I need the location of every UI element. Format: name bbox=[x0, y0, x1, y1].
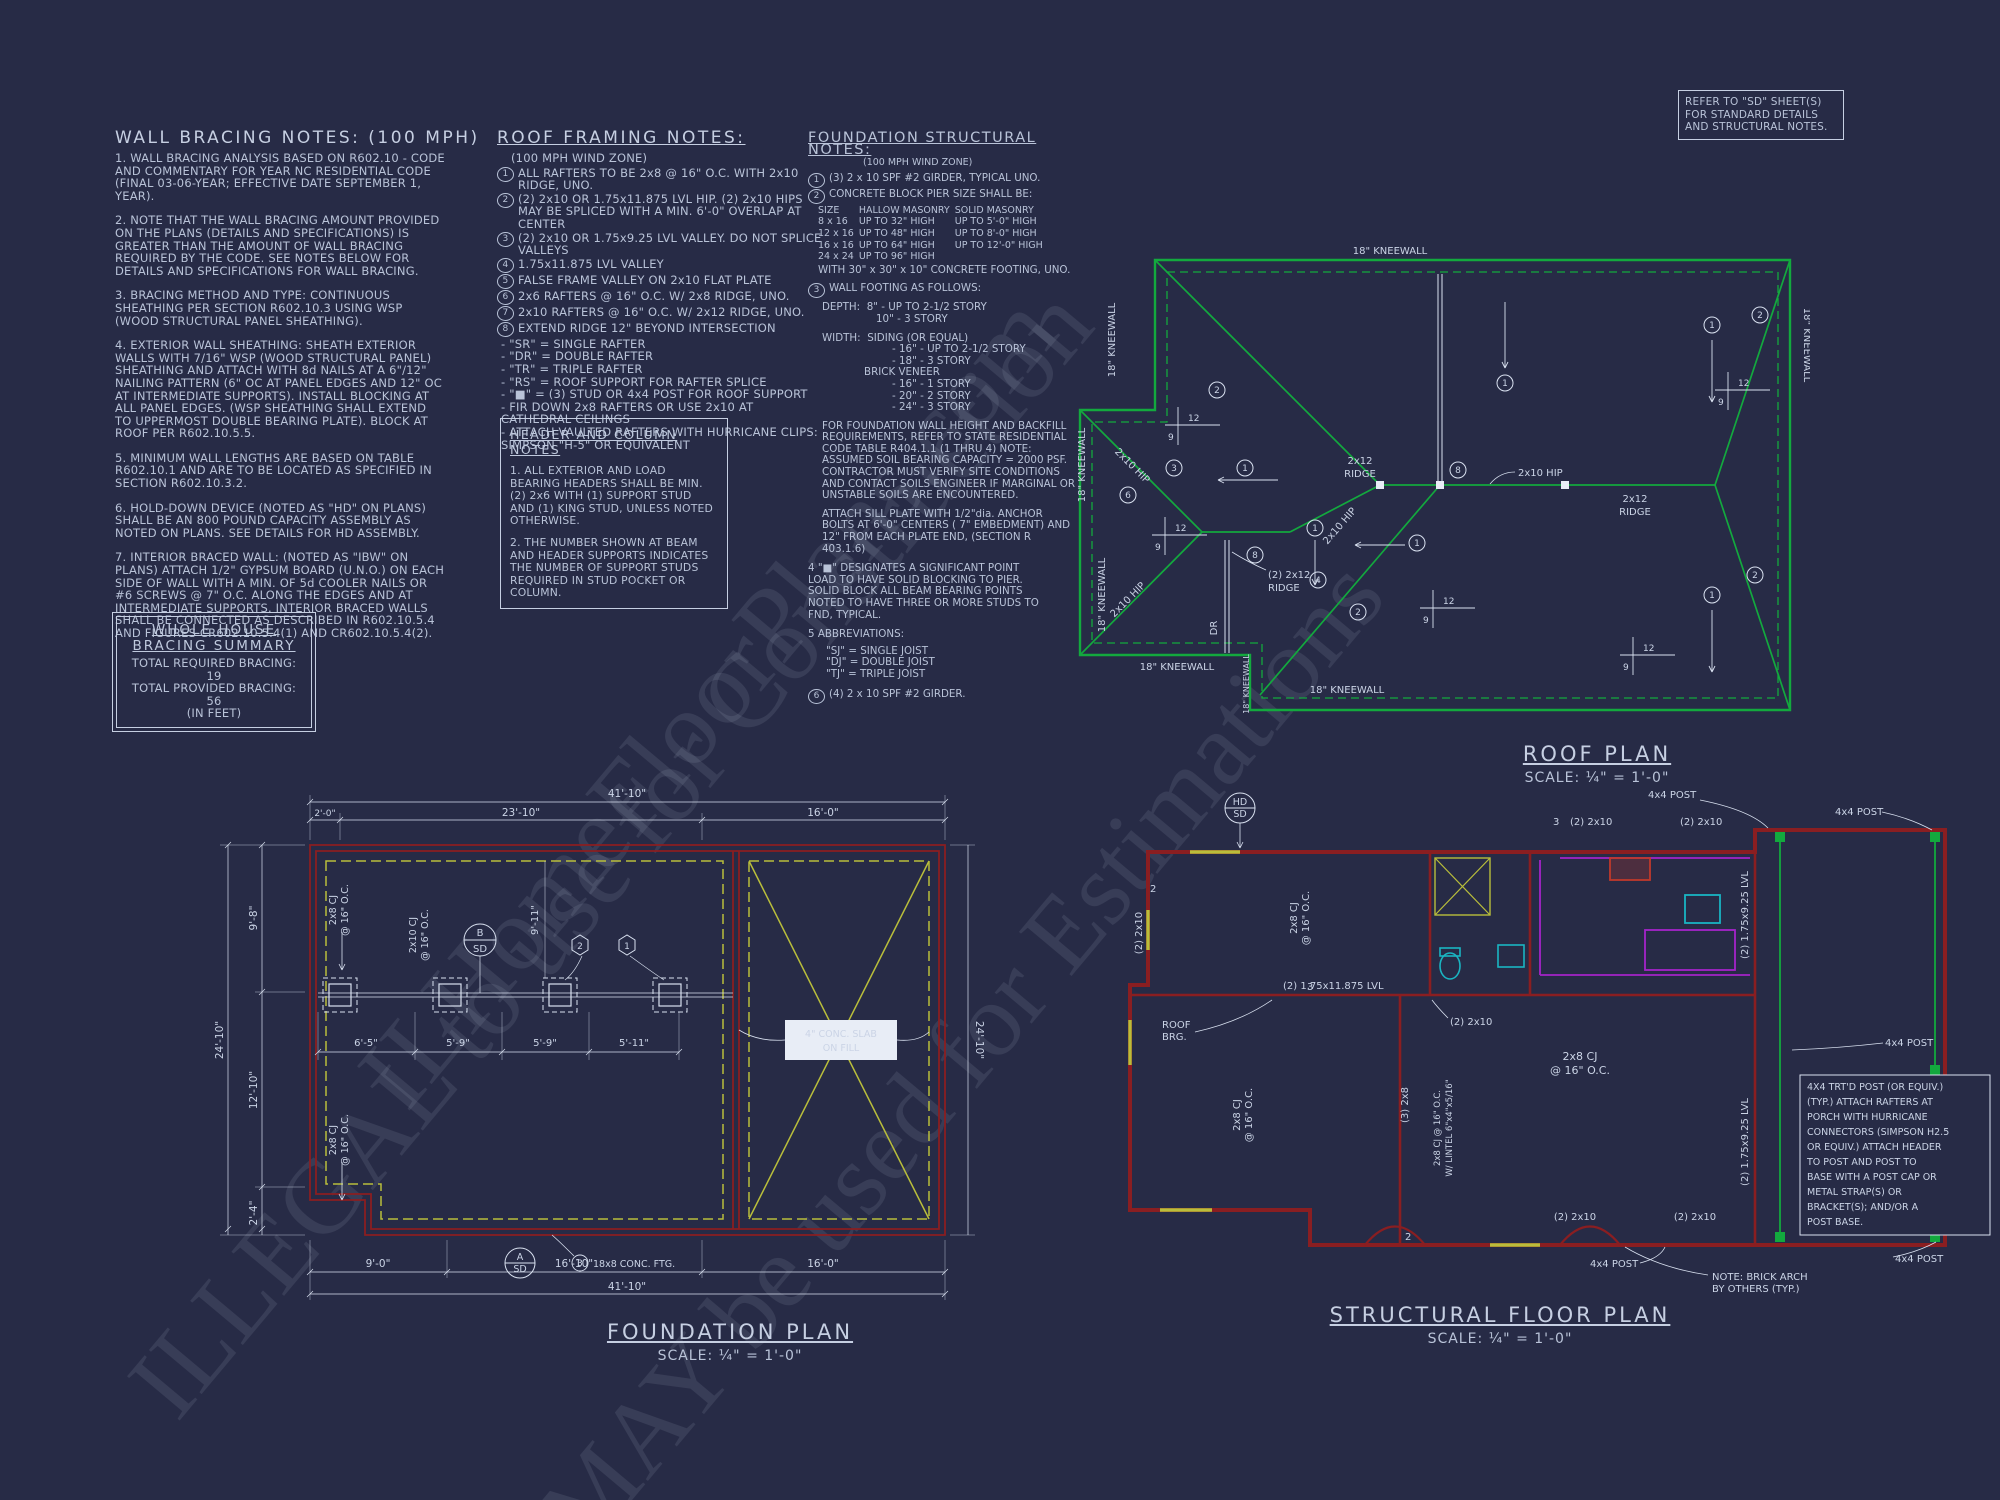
roof-framing-title: ROOF FRAMING NOTES: bbox=[497, 128, 827, 148]
svg-text:2x8 CJ: 2x8 CJ bbox=[1232, 1099, 1243, 1131]
wall-bracing-note: 2. NOTE THAT THE WALL BRACING AMOUNT PRO… bbox=[115, 214, 445, 277]
svg-text:12'-10": 12'-10" bbox=[248, 1071, 260, 1109]
svg-text:ON FILL: ON FILL bbox=[823, 1043, 860, 1054]
roof-note-text: EXTEND RIDGE 12" BEYOND INTERSECTION bbox=[518, 322, 827, 337]
svg-text:POST BASE.: POST BASE. bbox=[1807, 1217, 1863, 1228]
roof-outline bbox=[1080, 260, 1790, 710]
wall-bracing-note: 3. BRACING METHOD AND TYPE: CONTINUOUS S… bbox=[115, 289, 445, 327]
svg-text:(TYP.) ATTACH RAFTERS AT: (TYP.) ATTACH RAFTERS AT bbox=[1807, 1097, 1933, 1108]
roof-note-text: 2x10 RAFTERS @ 16" O.C. W/ 2x12 RIDGE, U… bbox=[518, 306, 827, 321]
svg-text:(2) 2x12: (2) 2x12 bbox=[1268, 570, 1310, 581]
svg-text:2x12: 2x12 bbox=[1347, 456, 1372, 467]
foundation-note-3: 3WALL FOOTING AS FOLLOWS: bbox=[808, 283, 1088, 298]
foundation-plan-title-block: FOUNDATION PLAN SCALE: ¼" = 1'-0" bbox=[590, 1320, 870, 1364]
roof-note-item: 41.75x11.875 LVL VALLEY bbox=[497, 258, 827, 273]
girder-detail-bubble-B: B SD bbox=[464, 924, 496, 993]
sd-ref-line3: AND STRUCTURAL NOTES. bbox=[1685, 121, 1837, 134]
svg-text:3: 3 bbox=[1307, 982, 1313, 993]
svg-text:18" KNEEWALL: 18" KNEEWALL bbox=[1353, 246, 1428, 257]
svg-text:2x12: 2x12 bbox=[1622, 494, 1647, 505]
roof-plan-title: ROOF PLAN bbox=[1477, 742, 1717, 766]
roof-note-text: (2) 2x10 OR 1.75x9.25 LVL VALLEY. DO NOT… bbox=[518, 232, 827, 257]
sd-ref-line1: REFER TO "SD" SHEET(S) bbox=[1685, 96, 1837, 109]
roof-note-number: 2 bbox=[497, 193, 514, 208]
roof-note-number: 3 bbox=[497, 232, 514, 247]
kitchen-cabinets bbox=[1540, 858, 1750, 975]
svg-text:(3) 2x8: (3) 2x8 bbox=[1400, 1087, 1411, 1123]
foundation-note-4: 4 "■" DESIGNATES A SIGNIFICANT POINT LOA… bbox=[808, 563, 1043, 621]
svg-text:(2) 2x10: (2) 2x10 bbox=[1680, 817, 1722, 828]
svg-text:(2) 1.75x9.25 LVL: (2) 1.75x9.25 LVL bbox=[1740, 871, 1751, 959]
header-column-title: HEADER AND COLUMN NOTES bbox=[510, 427, 718, 457]
svg-text:1: 1 bbox=[1242, 464, 1248, 474]
foundation-plan-title: FOUNDATION PLAN bbox=[590, 1320, 870, 1344]
svg-text:2: 2 bbox=[1757, 311, 1763, 321]
svg-text:2: 2 bbox=[1150, 884, 1156, 895]
svg-text:RIDGE: RIDGE bbox=[1268, 583, 1300, 594]
svg-text:2: 2 bbox=[1752, 571, 1758, 581]
svg-text:SD: SD bbox=[473, 944, 487, 955]
svg-text:9: 9 bbox=[1718, 398, 1724, 408]
header-column-notes-box: HEADER AND COLUMN NOTES 1. ALL EXTERIOR … bbox=[500, 418, 728, 609]
svg-text:5'-9": 5'-9" bbox=[533, 1038, 557, 1049]
svg-text:2: 2 bbox=[1405, 1232, 1411, 1243]
svg-text:SD: SD bbox=[1233, 809, 1246, 820]
roof-note-item: 1ALL RAFTERS TO BE 2x8 @ 16" O.C. WITH 2… bbox=[497, 167, 827, 192]
svg-text:4: 4 bbox=[1315, 576, 1321, 586]
svg-text:41'-10": 41'-10" bbox=[608, 1281, 646, 1293]
footing-depth: DEPTH: 8" - UP TO 2-1/2 STORY 10" - 3 ST… bbox=[822, 302, 1088, 325]
svg-text:2x8 CJ: 2x8 CJ bbox=[328, 1125, 339, 1155]
floor-plan-scale: SCALE: ¼" = 1'-0" bbox=[1320, 1331, 1680, 1347]
roof-note-number: 5 bbox=[497, 274, 514, 289]
svg-text:4x4 POST: 4x4 POST bbox=[1885, 1038, 1934, 1049]
svg-text:1: 1 bbox=[1709, 591, 1715, 601]
svg-text:8: 8 bbox=[1455, 466, 1461, 476]
wall-bracing-note: 4. EXTERIOR WALL SHEATHING: SHEATH EXTER… bbox=[115, 339, 445, 440]
roof-note-item: 2(2) 2x10 OR 1.75x11.875 LVL HIP. (2) 2x… bbox=[497, 193, 827, 231]
sd-ref-line2: FOR STANDARD DETAILS bbox=[1685, 109, 1837, 122]
bracing-units: (IN FEET) bbox=[123, 707, 305, 720]
foundation-note-6: 6(4) 2 x 10 SPF #2 GIRDER. bbox=[808, 689, 1088, 704]
svg-text:16'-10": 16'-10" bbox=[555, 1258, 593, 1270]
svg-text:2x8 CJ: 2x8 CJ bbox=[1289, 902, 1300, 934]
svg-text:2: 2 bbox=[1214, 386, 1220, 396]
foundation-plan-scale: SCALE: ¼" = 1'-0" bbox=[590, 1348, 870, 1364]
bracing-summary-box: WHOLE HOUSE BRACING SUMMARY TOTAL REQUIR… bbox=[112, 612, 316, 732]
wall-bracing-note: 1. WALL BRACING ANALYSIS BASED ON R602.1… bbox=[115, 152, 445, 202]
bracing-summary-heading1: WHOLE HOUSE bbox=[123, 622, 305, 638]
blueprint-sheet: ILHomeFloorPlans.com ILLEGAL to use for … bbox=[0, 0, 2000, 1500]
foundation-note-2: 2CONCRETE BLOCK PIER SIZE SHALL BE: bbox=[808, 189, 1088, 204]
svg-text:12: 12 bbox=[1175, 524, 1186, 534]
svg-text:18" KNEEWALL: 18" KNEEWALL bbox=[1097, 557, 1108, 632]
roof-leaders bbox=[1232, 472, 1515, 570]
svg-text:18x8 CONC. FTG.: 18x8 CONC. FTG. bbox=[593, 1259, 675, 1270]
svg-text:NOTE: BRICK ARCH: NOTE: BRICK ARCH bbox=[1712, 1272, 1808, 1283]
svg-text:4x4 POST: 4x4 POST bbox=[1648, 790, 1697, 801]
svg-text:23'-10": 23'-10" bbox=[502, 807, 540, 819]
svg-text:TO POST AND POST TO: TO POST AND POST TO bbox=[1806, 1157, 1917, 1168]
roof-note-number: 7 bbox=[497, 306, 514, 321]
svg-text:9: 9 bbox=[1168, 433, 1174, 443]
roof-note-item: 5FALSE FRAME VALLEY ON 2x10 FLAT PLATE bbox=[497, 274, 827, 289]
svg-text:4X4 TRT'D POST (OR EQUIV.): 4X4 TRT'D POST (OR EQUIV.) bbox=[1807, 1082, 1943, 1093]
svg-text:(2) 1.75x11.875 LVL: (2) 1.75x11.875 LVL bbox=[1283, 981, 1384, 992]
svg-text:@ 16" O.C.: @ 16" O.C. bbox=[1550, 1064, 1610, 1077]
svg-text:1: 1 bbox=[1502, 379, 1508, 389]
svg-text:RIDGE: RIDGE bbox=[1344, 469, 1376, 480]
footing-detail-callouts: A SD 3 18x8 CONC. FTG. bbox=[505, 1235, 675, 1278]
pier-table-header: SIZE HALLOW MASONRY SOLID MASONRY bbox=[818, 205, 1048, 217]
pier-table-row: 8 x 16UP TO 32" HIGHUP TO 5'-0" HIGH bbox=[818, 216, 1048, 228]
svg-text:OR EQUIV.) ATTACH HEADER: OR EQUIV.) ATTACH HEADER bbox=[1807, 1142, 1942, 1153]
roof-note-item: 8EXTEND RIDGE 12" BEYOND INTERSECTION bbox=[497, 322, 827, 337]
svg-text:1: 1 bbox=[624, 942, 630, 952]
svg-text:2x8 CJ: 2x8 CJ bbox=[1563, 1050, 1598, 1063]
foundation-note-5: 5 ABBREVIATIONS: bbox=[808, 629, 1088, 641]
roof-plan-drawing: 18" KNEEWALL 18" KNEEWALL 18" KNEEWALL 1… bbox=[1060, 240, 1810, 740]
double-rafter-beams bbox=[1225, 274, 1442, 653]
wall-bracing-note: 6. HOLD-DOWN DEVICE (NOTED AS "HD" ON PL… bbox=[115, 502, 445, 540]
girder-line bbox=[318, 993, 733, 997]
svg-text:(2) 1.75x9.25 LVL: (2) 1.75x9.25 LVL bbox=[1740, 1098, 1751, 1186]
abbr-tj: "TJ" = TRIPLE JOIST bbox=[826, 669, 1088, 681]
svg-text:B: B bbox=[477, 928, 484, 939]
svg-text:@ 16" O.C.: @ 16" O.C. bbox=[1301, 891, 1312, 946]
svg-text:RIDGE: RIDGE bbox=[1619, 507, 1651, 518]
roof-note-text: (2) 2x10 OR 1.75x11.875 LVL HIP. (2) 2x1… bbox=[518, 193, 827, 231]
hd-sd-bubble: HD SD bbox=[1225, 793, 1255, 848]
svg-text:(2) 2x10: (2) 2x10 bbox=[1450, 1017, 1492, 1028]
floor-plan-title: STRUCTURAL FLOOR PLAN bbox=[1320, 1303, 1680, 1327]
svg-text:9: 9 bbox=[1623, 663, 1629, 673]
pier-table-row: 12 x 16UP TO 48" HIGHUP TO 8'-0" HIGH bbox=[818, 228, 1048, 240]
svg-text:12: 12 bbox=[1188, 414, 1199, 424]
svg-text:18" KNEEWALL: 18" KNEEWALL bbox=[1077, 427, 1088, 502]
pier-boxes bbox=[323, 978, 687, 1012]
svg-text:PORCH WITH HURRICANE: PORCH WITH HURRICANE bbox=[1807, 1112, 1928, 1123]
pier-size-table: SIZE HALLOW MASONRY SOLID MASONRY 8 x 16… bbox=[818, 205, 1048, 263]
foundation-notes-title: FOUNDATION STRUCTURAL NOTES: bbox=[808, 133, 1088, 156]
post-note-box: 4X4 TRT'D POST (OR EQUIV.) (TYP.) ATTACH… bbox=[1800, 1075, 1990, 1235]
callout-bubbles: 2 3 6 1 1 1 1 1 1 2 2 4 2 8 8 bbox=[1120, 307, 1768, 620]
svg-text:2x8 CJ: 2x8 CJ bbox=[328, 895, 339, 925]
roof-note-text: 1.75x11.875 LVL VALLEY bbox=[518, 258, 827, 273]
roof-note-item: 62x6 RAFTERS @ 16" O.C. W/ 2x8 RIDGE, UN… bbox=[497, 290, 827, 305]
svg-text:(2) 2x10: (2) 2x10 bbox=[1554, 1212, 1596, 1223]
svg-text:9'-8": 9'-8" bbox=[248, 906, 260, 931]
svg-text:12: 12 bbox=[1443, 597, 1454, 607]
hex-callouts: 2 1 bbox=[565, 935, 664, 980]
svg-text:1: 1 bbox=[1312, 524, 1318, 534]
roof-framing-subtitle: (100 MPH WIND ZONE) bbox=[511, 152, 827, 165]
hip-ridge-labels: 2x10 HIP 2x10 HIP 2x10 HIP 2x10 HIP 2x12… bbox=[1109, 447, 1651, 636]
wall-bracing-title: WALL BRACING NOTES: (100 MPH) bbox=[115, 128, 445, 148]
foundation-backfill-para: FOR FOUNDATION WALL HEIGHT AND BACKFILL … bbox=[822, 421, 1077, 502]
svg-text:BRG.: BRG. bbox=[1162, 1032, 1187, 1043]
floor-plan-drawing: HD SD 3 (2) 2x10 (2) 2x10 4x4 POST 4x4 P… bbox=[1100, 770, 2000, 1310]
svg-text:1: 1 bbox=[1709, 321, 1715, 331]
slope-indicators: 129 129 129 129 129 bbox=[1152, 372, 1770, 675]
svg-text:(2) 2x10: (2) 2x10 bbox=[1674, 1212, 1716, 1223]
roof-framing-notes: ROOF FRAMING NOTES: (100 MPH WIND ZONE) … bbox=[497, 128, 827, 451]
svg-text:@ 16" O.C.: @ 16" O.C. bbox=[340, 1114, 351, 1166]
foundation-notes-subtitle: (100 MPH WIND ZONE) bbox=[863, 157, 1088, 169]
svg-text:18" KNEEWALL: 18" KNEEWALL bbox=[1310, 685, 1385, 696]
svg-text:@ 16" O.C.: @ 16" O.C. bbox=[340, 884, 351, 936]
mid-vertical-dim: 9'-11" bbox=[530, 861, 545, 978]
svg-text:2x8 CJ @ 16" O.C.: 2x8 CJ @ 16" O.C. bbox=[1433, 1090, 1443, 1166]
svg-text:18" KNEEWALL: 18" KNEEWALL bbox=[1801, 308, 1810, 383]
window-markers bbox=[1130, 852, 1540, 1245]
bracing-summary-heading2: BRACING SUMMARY bbox=[123, 638, 305, 654]
svg-text:12: 12 bbox=[1643, 644, 1654, 654]
svg-text:SD: SD bbox=[513, 1264, 526, 1275]
svg-text:8: 8 bbox=[1252, 551, 1258, 561]
floor-plan-title-block: STRUCTURAL FLOOR PLAN SCALE: ¼" = 1'-0" bbox=[1320, 1303, 1680, 1347]
svg-text:24'-10": 24'-10" bbox=[214, 1021, 226, 1059]
svg-text:HD: HD bbox=[1233, 797, 1247, 808]
slab-label-box: 4" CONC. SLAB ON FILL bbox=[739, 1020, 929, 1060]
svg-text:2'-4": 2'-4" bbox=[248, 1201, 260, 1226]
svg-text:(2) 2x10: (2) 2x10 bbox=[1134, 912, 1145, 954]
svg-text:BY OTHERS (TYP.): BY OTHERS (TYP.) bbox=[1712, 1284, 1800, 1295]
svg-text:5'-9": 5'-9" bbox=[446, 1038, 470, 1049]
svg-text:5'-11": 5'-11" bbox=[619, 1038, 649, 1049]
joist-labels: 2x8 CJ @ 16" O.C. 2x10 CJ @ 16" O.C. 2x8… bbox=[328, 884, 431, 1200]
footing-width: WIDTH: SIDING (OR EQUAL) - 16" - UP TO 2… bbox=[822, 333, 1088, 414]
roof-note-item: 72x10 RAFTERS @ 16" O.C. W/ 2x12 RIDGE, … bbox=[497, 306, 827, 321]
pier-table-row: 24 x 24UP TO 96" HIGH bbox=[818, 251, 1048, 263]
pier-table-footer: WITH 30" x 30" x 10" CONCRETE FOOTING, U… bbox=[818, 265, 1088, 277]
svg-text:16'-0": 16'-0" bbox=[807, 1258, 839, 1270]
wall-bracing-note: 5. MINIMUM WALL LENGTHS ARE BASED ON TAB… bbox=[115, 452, 445, 490]
svg-text:9'-0": 9'-0" bbox=[366, 1258, 391, 1270]
svg-text:DR: DR bbox=[1209, 621, 1220, 636]
svg-text:4x4 POST: 4x4 POST bbox=[1590, 1259, 1639, 1270]
pier-table-row: 16 x 16UP TO 64" HIGHUP TO 12'-0" HIGH bbox=[818, 240, 1048, 252]
svg-text:9: 9 bbox=[1155, 543, 1161, 553]
bathroom-fixtures bbox=[1435, 858, 1524, 979]
svg-text:18" KNEEWALL: 18" KNEEWALL bbox=[1140, 662, 1215, 673]
roof-note-number: 1 bbox=[497, 167, 514, 182]
svg-text:2x10 HIP: 2x10 HIP bbox=[1112, 447, 1151, 486]
roof-note-text: 2x6 RAFTERS @ 16" O.C. W/ 2x8 RIDGE, UNO… bbox=[518, 290, 827, 305]
svg-text:ROOF: ROOF bbox=[1162, 1020, 1191, 1031]
svg-text:3: 3 bbox=[1553, 817, 1559, 828]
roof-note-item: 3(2) 2x10 OR 1.75x9.25 LVL VALLEY. DO NO… bbox=[497, 232, 827, 257]
svg-text:(2) 2x10: (2) 2x10 bbox=[1570, 817, 1612, 828]
bracing-provided: TOTAL PROVIDED BRACING: 56 bbox=[123, 682, 305, 707]
svg-text:2'-0": 2'-0" bbox=[314, 809, 335, 819]
svg-text:A: A bbox=[517, 1252, 524, 1263]
svg-text:18" KNEEWALL: 18" KNEEWALL bbox=[1242, 654, 1251, 714]
sill-plate-para: ATTACH SILL PLATE WITH 1/2"dia. ANCHOR B… bbox=[822, 509, 1077, 555]
foundation-structural-notes: FOUNDATION STRUCTURAL NOTES: (100 MPH WI… bbox=[808, 133, 1088, 705]
svg-text:BRACKET(S); AND/OR A: BRACKET(S); AND/OR A bbox=[1807, 1202, 1919, 1213]
roof-note-text: ALL RAFTERS TO BE 2x8 @ 16" O.C. WITH 2x… bbox=[518, 167, 827, 192]
svg-text:METAL STRAP(S) OR: METAL STRAP(S) OR bbox=[1807, 1187, 1902, 1198]
svg-text:W/ LINTEL 6"x4"x5/16": W/ LINTEL 6"x4"x5/16" bbox=[1445, 1079, 1455, 1176]
svg-text:6: 6 bbox=[1125, 491, 1131, 501]
svg-text:2: 2 bbox=[1355, 608, 1361, 618]
svg-text:6'-5": 6'-5" bbox=[354, 1038, 378, 1049]
svg-text:2: 2 bbox=[577, 942, 583, 952]
svg-text:3: 3 bbox=[1171, 464, 1177, 474]
svg-text:4x4 POST: 4x4 POST bbox=[1835, 807, 1884, 818]
svg-text:9'-11": 9'-11" bbox=[530, 905, 541, 935]
roof-note-text: FALSE FRAME VALLEY ON 2x10 FLAT PLATE bbox=[518, 274, 827, 289]
foundation-plan-drawing: 6'-5" 5'-9" 5'-9" 5'-11" 9'-11" B SD 2 1 bbox=[190, 780, 990, 1320]
svg-text:4x4 POST: 4x4 POST bbox=[1895, 1254, 1944, 1265]
foundation-note-1: 1(3) 2 x 10 SPF #2 GIRDER, TYPICAL UNO. bbox=[808, 173, 1088, 188]
roof-note-number: 6 bbox=[497, 290, 514, 305]
svg-text:2x10 HIP: 2x10 HIP bbox=[1109, 581, 1148, 620]
bracing-required: TOTAL REQUIRED BRACING: 19 bbox=[123, 657, 305, 682]
roof-note-number: 4 bbox=[497, 258, 514, 273]
svg-text:2x10 CJ: 2x10 CJ bbox=[408, 917, 419, 953]
svg-text:9: 9 bbox=[1423, 616, 1429, 626]
svg-text:24'-10": 24'-10" bbox=[973, 1021, 985, 1059]
svg-text:12: 12 bbox=[1738, 379, 1749, 389]
wall-bracing-notes: WALL BRACING NOTES: (100 MPH) 1. WALL BR… bbox=[115, 128, 445, 652]
header-column-p1: 1. ALL EXTERIOR AND LOAD BEARING HEADERS… bbox=[510, 465, 718, 528]
roof-note-number: 8 bbox=[497, 322, 514, 337]
svg-text:16'-0": 16'-0" bbox=[807, 807, 839, 819]
svg-text:CONNECTORS (SIMPSON H2.5: CONNECTORS (SIMPSON H2.5 bbox=[1807, 1127, 1949, 1138]
girder-dims: 6'-5" 5'-9" 5'-9" 5'-11" bbox=[315, 1012, 682, 1060]
svg-text:@ 16" O.C.: @ 16" O.C. bbox=[1244, 1088, 1255, 1143]
svg-text:18" KNEEWALL: 18" KNEEWALL bbox=[1107, 302, 1118, 377]
callout-arrows bbox=[1218, 302, 1715, 672]
header-column-p2: 2. THE NUMBER SHOWN AT BEAM AND HEADER S… bbox=[510, 537, 718, 600]
svg-text:2x10 HIP: 2x10 HIP bbox=[1518, 468, 1563, 479]
svg-text:1: 1 bbox=[1414, 539, 1420, 549]
svg-text:BASE WITH A POST CAP OR: BASE WITH A POST CAP OR bbox=[1807, 1172, 1937, 1183]
svg-text:@ 16" O.C.: @ 16" O.C. bbox=[420, 909, 431, 961]
svg-text:4" CONC. SLAB: 4" CONC. SLAB bbox=[805, 1029, 877, 1040]
sd-reference-box: REFER TO "SD" SHEET(S) FOR STANDARD DETA… bbox=[1678, 90, 1844, 140]
svg-text:41'-10": 41'-10" bbox=[608, 788, 646, 800]
